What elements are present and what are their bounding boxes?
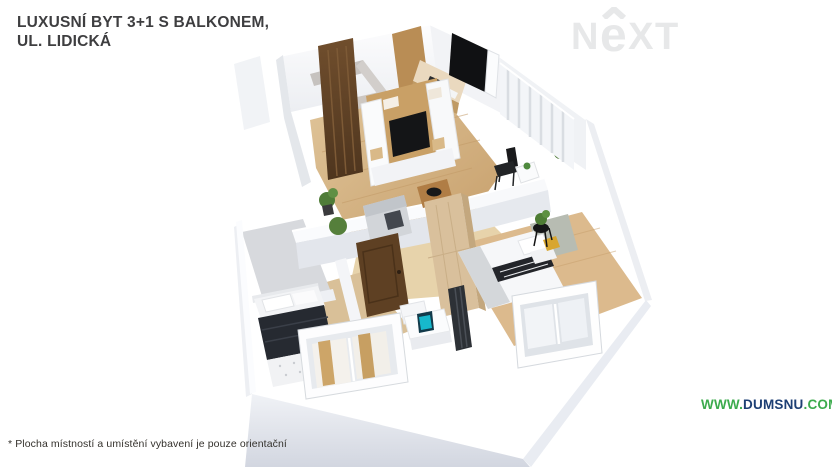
logo-letter-e-with-roof: e xyxy=(600,14,628,59)
disclaimer-note: * Plocha místností a umístění vybavení j… xyxy=(8,438,287,450)
listing-title: LUXUSNÍ BYT 3+1 S BALKONEM,UL. LIDICKÁ xyxy=(17,13,269,51)
logo-letters-xt: XT xyxy=(628,15,680,59)
real-estate-visual: LUXUSNÍ BYT 3+1 S BALKONEM,UL. LIDICKÁ N… xyxy=(0,0,832,467)
logo-letter-n: N xyxy=(571,15,600,59)
next-logo: NeXT xyxy=(571,14,680,59)
website-url[interactable]: WWW.DUMSNU.COM xyxy=(701,397,832,412)
